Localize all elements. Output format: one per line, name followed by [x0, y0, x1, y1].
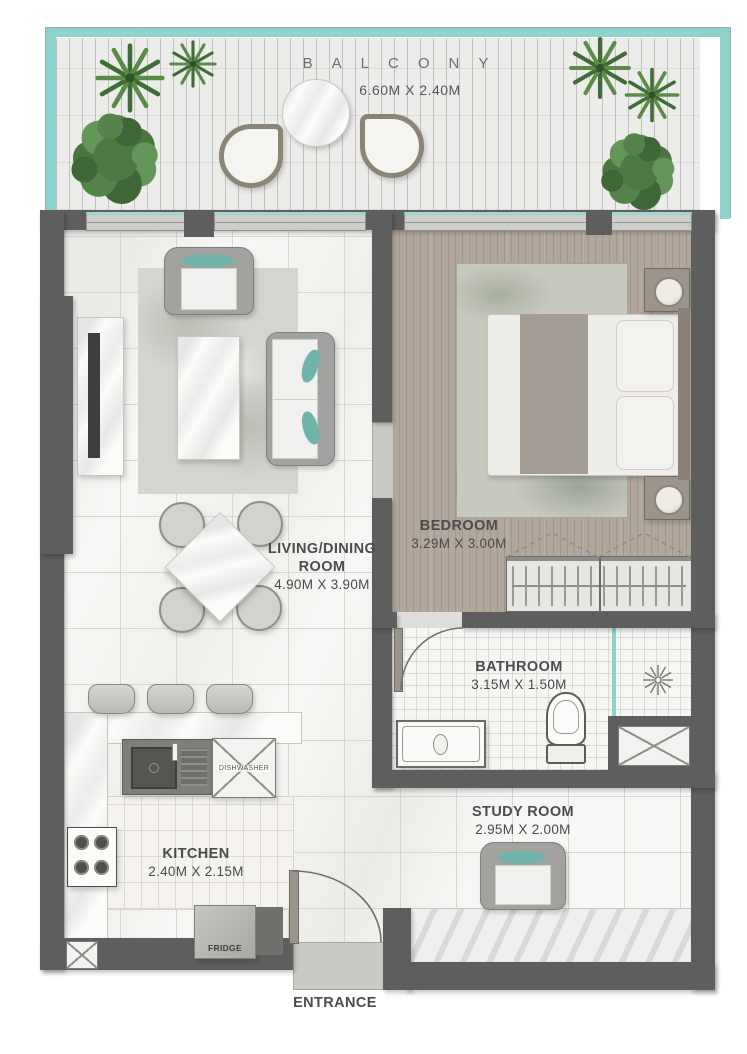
study-chair-seat	[495, 865, 551, 905]
toilet-seat	[553, 700, 579, 734]
bedroom-door-opening	[372, 422, 394, 500]
bed-blanket	[520, 314, 588, 474]
wall-bottom-right	[405, 962, 715, 990]
study-chair	[480, 842, 566, 910]
nightstand	[644, 476, 690, 520]
wardrobe	[506, 556, 692, 612]
burner-icon	[74, 835, 89, 850]
window	[86, 212, 188, 231]
faucet-icon	[172, 743, 178, 761]
bed-pillow	[616, 396, 674, 470]
fridge-label: FRIDGE	[208, 943, 242, 958]
wall-divider-upper	[372, 210, 392, 422]
wardrobe-divider	[599, 557, 601, 611]
burner-icon	[94, 835, 109, 850]
burner-icon	[74, 860, 89, 875]
wall-right	[691, 210, 715, 990]
bed-headboard	[678, 308, 690, 480]
balcony-chair	[219, 124, 283, 188]
bar-stool	[88, 684, 135, 714]
stove-icon	[67, 827, 117, 887]
dishwasher-label: DISHWASHER	[218, 765, 270, 772]
study-label: STUDY ROOM 2.95M X 2.00M	[457, 803, 589, 837]
bedroom-label: BEDROOM 3.29M X 3.00M	[393, 517, 525, 551]
living-dining-label: LIVING/DINING ROOM 4.90M X 3.90M	[265, 540, 379, 592]
sink-basin	[131, 747, 177, 789]
study-desk	[405, 908, 691, 966]
palm-plant-icon	[92, 40, 168, 116]
bathroom-vanity	[396, 720, 486, 768]
wall-bathroom-bottom	[372, 770, 715, 788]
bar-stool	[206, 684, 253, 714]
kitchen-label: KITCHEN 2.40M X 2.15M	[136, 845, 256, 879]
sink-drain-icon	[149, 763, 159, 773]
wall-left-thick	[40, 296, 73, 554]
wall-bathroom-top	[462, 612, 715, 628]
armchair	[164, 247, 254, 315]
wall-bathroom-left	[372, 612, 392, 788]
toilet-icon	[545, 692, 585, 764]
lamp-icon	[654, 277, 684, 307]
tv-icon	[88, 333, 100, 458]
bathroom-label: BATHROOM 3.15M X 1.50M	[453, 658, 585, 692]
bush-plant-icon	[600, 132, 678, 210]
shower-head-icon	[640, 662, 676, 698]
entrance-label: ENTRANCE	[272, 994, 398, 1012]
tv-console	[77, 317, 124, 476]
lamp-icon	[654, 485, 684, 515]
bar-stool	[147, 684, 194, 714]
wall-pier	[586, 210, 612, 235]
armchair-seat	[181, 268, 237, 310]
palm-plant-icon	[167, 38, 219, 90]
sink-drainboard	[181, 748, 207, 786]
bathroom-door-leaf	[394, 628, 403, 692]
sink-icon	[433, 734, 448, 755]
kitchen-sink-unit	[122, 739, 214, 795]
window	[214, 212, 366, 231]
kitchen-cabinet	[256, 907, 283, 955]
nightstand	[644, 268, 690, 312]
bed-pillow	[616, 320, 674, 392]
palm-plant-icon	[622, 65, 682, 125]
wall-pier	[184, 210, 214, 237]
window	[404, 212, 588, 231]
toilet-tank	[546, 744, 586, 764]
bush-plant-icon	[70, 112, 162, 204]
shower-tray	[618, 726, 690, 766]
entrance-door-leaf	[289, 870, 299, 944]
window	[600, 212, 692, 231]
burner-icon	[94, 860, 109, 875]
service-shaft	[66, 941, 98, 969]
coffee-table	[177, 336, 240, 460]
fridge: FRIDGE	[194, 905, 256, 959]
armchair-pillow	[182, 254, 234, 267]
balcony-dims: 6.60M X 2.40M	[250, 82, 570, 98]
wall-bathroom-top-left	[372, 612, 397, 628]
dishwasher: DISHWASHER	[212, 738, 276, 798]
study-chair-pillow	[498, 851, 546, 864]
apartment-floor-plan: BALCONY 6.60M X 2.40M	[0, 0, 747, 1054]
bathroom-door-threshold	[397, 612, 462, 628]
balcony-label: BALCONY	[240, 55, 570, 72]
balcony-chair	[360, 114, 424, 178]
sofa	[266, 332, 335, 466]
entrance-threshold	[293, 942, 385, 990]
toilet-bowl	[546, 692, 586, 746]
